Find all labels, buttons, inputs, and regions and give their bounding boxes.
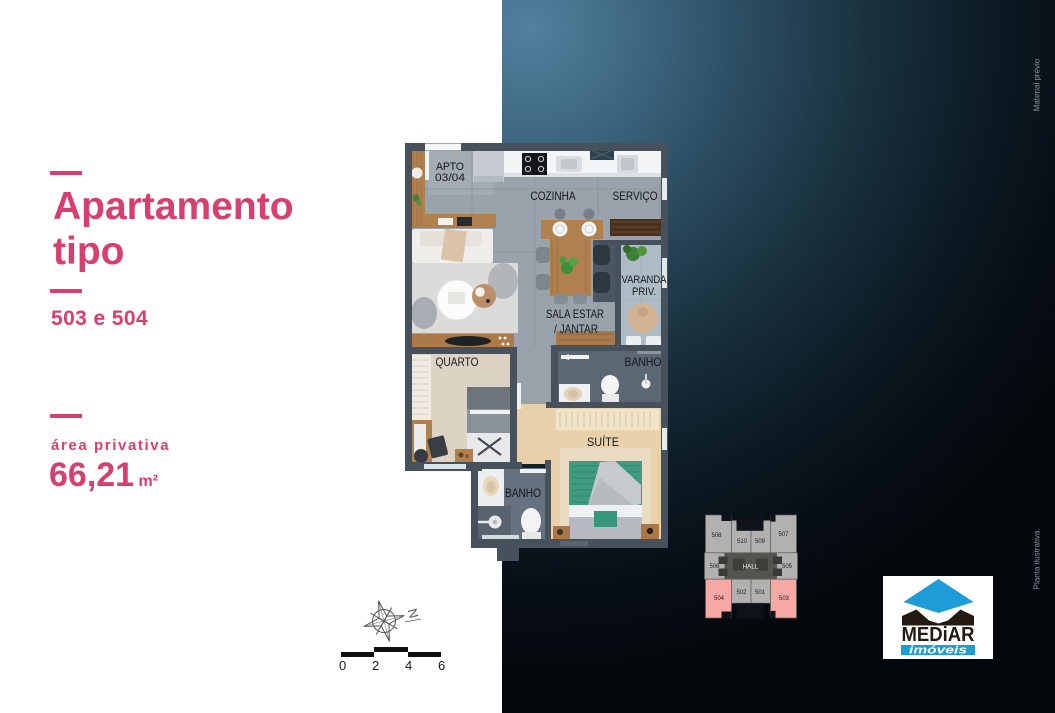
svg-text:508: 508 (711, 533, 722, 539)
svg-text:509: 509 (755, 539, 766, 545)
svg-text:507: 507 (778, 532, 789, 538)
svg-text:/ JANTAR: / JANTAR (554, 322, 598, 336)
svg-text:BANHO: BANHO (625, 355, 662, 369)
svg-text:504: 504 (714, 596, 725, 602)
svg-text:HALL: HALL (743, 564, 759, 571)
svg-text:MEDiAR: MEDiAR (902, 623, 975, 646)
svg-text:501: 501 (755, 590, 766, 596)
svg-text:BANHO: BANHO (505, 486, 541, 500)
svg-text:SERVIÇO: SERVIÇO (613, 189, 658, 203)
svg-text:QUARTO: QUARTO (436, 355, 479, 369)
svg-text:imóveis: imóveis (909, 645, 967, 657)
svg-text:SUÍTE: SUÍTE (587, 434, 619, 449)
svg-text:502: 502 (736, 590, 747, 596)
svg-text:SALA ESTAR: SALA ESTAR (546, 307, 604, 321)
svg-text:506: 506 (709, 564, 720, 570)
svg-text:503: 503 (779, 596, 790, 602)
svg-text:03/04: 03/04 (435, 172, 465, 184)
svg-text:VARANDA: VARANDA (622, 274, 668, 286)
svg-text:505: 505 (782, 564, 793, 570)
svg-text:N: N (405, 607, 422, 620)
svg-text:510: 510 (737, 539, 748, 545)
svg-text:PRIV.: PRIV. (632, 286, 656, 298)
svg-text:COZINHA: COZINHA (531, 189, 576, 203)
